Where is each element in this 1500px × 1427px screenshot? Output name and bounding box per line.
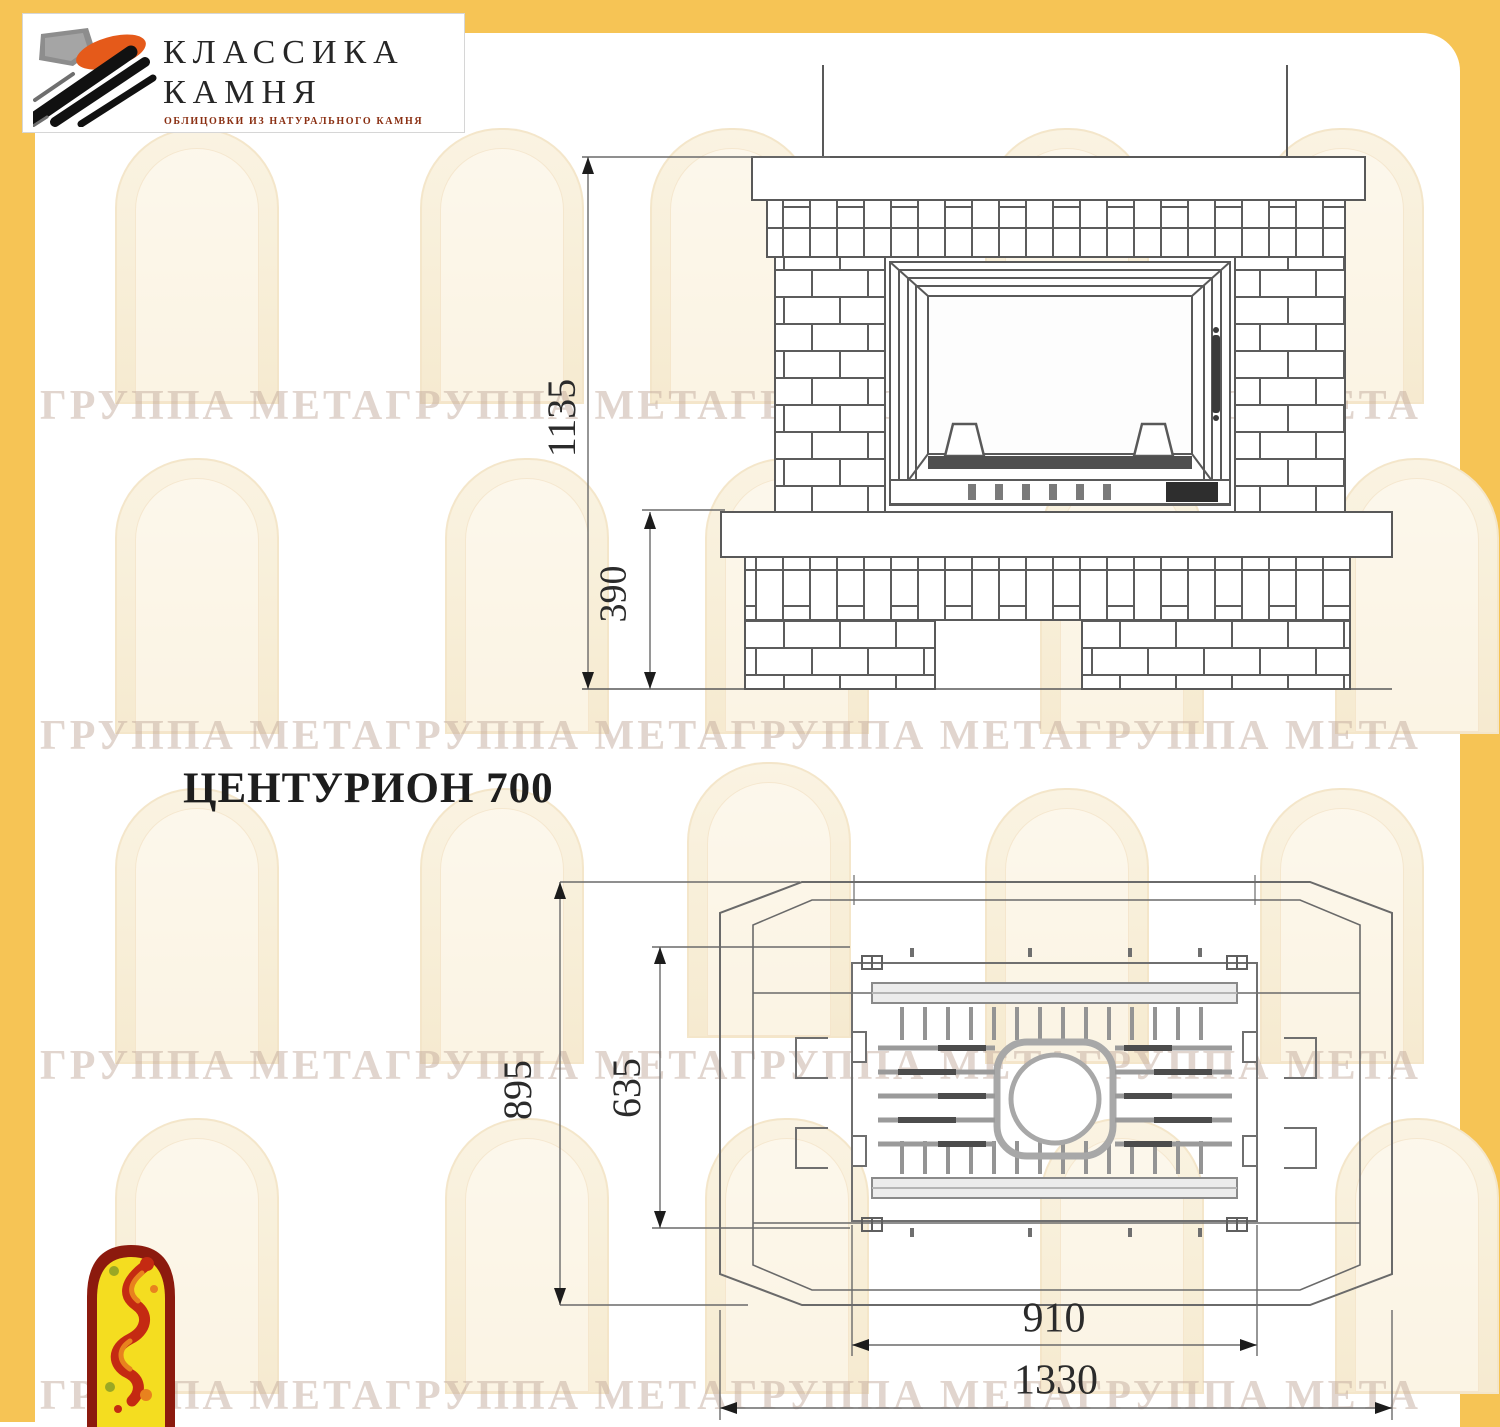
firebox-door [890, 262, 1230, 505]
right-brick-column [1235, 257, 1345, 512]
right-pedestal [1082, 620, 1350, 689]
logo-title-line1: КЛАССИКА [163, 36, 405, 70]
dim-label-total-depth: 895 [495, 1060, 540, 1120]
middle-shelf [721, 512, 1392, 557]
hearth-bar [928, 456, 1192, 469]
logo-box: КЛАССИКА КАМНЯ ОБЛИЦОВКИ ИЗ НАТУРАЛЬНОГО… [22, 13, 465, 133]
dim-label-total-width: 1330 [1014, 1358, 1098, 1404]
plan-view-drawing [720, 875, 1392, 1305]
page: ГРУППА МЕТАГРУППА МЕТАГРУППА МЕТАГРУППА … [0, 0, 1500, 1427]
brand-emblem-icon [84, 1237, 178, 1427]
dim-label-insert-depth: 635 [604, 1058, 649, 1118]
door-handle [1212, 335, 1220, 413]
vent-dark-block [1166, 482, 1218, 502]
dim-label-insert-width: 910 [1023, 1296, 1086, 1342]
lower-brick-band [745, 557, 1350, 620]
left-pedestal [745, 620, 935, 689]
product-title: ЦЕНТУРИОН 700 [183, 764, 554, 813]
dim-label-base-height: 390 [593, 566, 635, 623]
stone-logo-icon [33, 22, 158, 127]
logo-tagline: ОБЛИЦОВКИ ИЗ НАТУРАЛЬНОГО КАМНЯ [164, 116, 423, 127]
front-view-drawing [582, 65, 1392, 689]
upper-brick-band [767, 200, 1345, 257]
mantel-shelf [752, 157, 1365, 200]
plan-grate [796, 948, 1316, 1237]
dim-label-total-height: 1135 [539, 379, 584, 458]
andiron-right [1134, 424, 1173, 456]
grate-center-circle [1011, 1055, 1099, 1143]
technical-drawing: 1135 390 [0, 0, 1500, 1427]
andiron-left [945, 424, 984, 456]
logo-title-line2: КАМНЯ [163, 76, 323, 110]
left-brick-column [775, 257, 885, 512]
